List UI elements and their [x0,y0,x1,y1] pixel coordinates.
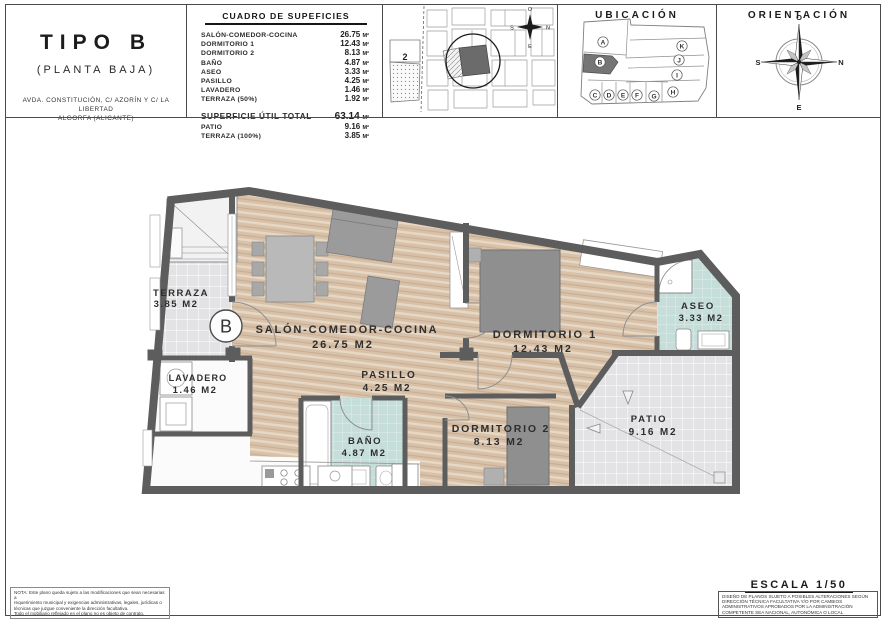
room-label: DORMITORIO 1 [493,329,597,341]
toilet [676,329,691,350]
room-label: LAVADERO [169,373,228,383]
unit-letter: G [651,93,656,100]
room-area: 3.33 M2 [679,313,724,324]
cooktop-control [265,469,274,478]
unit-letter: H [671,89,676,96]
site-map-green-area [390,62,420,102]
site-map-highlighted-parcel [459,45,490,76]
dining-table [266,236,314,302]
disclaimer-note: DISEÑO DE PLANOS SUJETO A POSIBLES ALTER… [718,591,878,618]
unit-letter: E [621,92,626,99]
patio-drain [714,472,725,483]
floor-plan: B TERRAZA 3.85 M2 SALÓN-COMEDOR-COCINA 2… [143,191,736,490]
room-label: PASILLO [361,370,416,381]
oven [318,466,352,487]
compass-letter: O [528,7,533,13]
unit-letter: C [593,92,598,99]
unit-letter: F [635,92,639,99]
compass-letter: N [838,58,843,67]
room-area: 26.75 M2 [312,339,374,351]
ubicacion-key-plan: A B C D E F G H I J K [581,19,709,104]
room-area: 4.87 M2 [342,448,387,459]
room-label: BAÑO [348,436,382,447]
compass-letter: E [528,44,532,50]
room-label: PATIO [631,414,668,425]
compass-letter: E [796,103,801,112]
note-line: ADMINISTRATIVOS APROBADOS POR LA ADMINIS… [722,604,874,609]
room-area: 4.25 M2 [363,383,412,394]
unit-letter: J [677,57,681,64]
unit-letter: A [601,39,606,46]
room-area: 8.13 M2 [474,436,525,448]
room-area: 9.16 M2 [629,427,678,438]
note-line: COMPETENTE SEA NACIONAL, AUTONÓMICA O LO… [722,610,874,615]
site-map: 2 O N S E [390,6,555,112]
compass-arm-south [796,62,803,100]
compass-letter: O [796,13,802,22]
room-area: 12.43 M2 [513,343,573,355]
room-area: 1.46 M2 [173,385,218,396]
armchair [360,276,399,328]
note-line: requerimiento municipal y exigencias adm… [14,600,166,605]
room-label: DORMITORIO 2 [452,423,550,435]
compass-letter: S [755,58,760,67]
unit-letter: B [598,59,603,66]
unit-letter: K [680,43,685,50]
nightstand [484,468,504,485]
note-line: Todo el mobiliario reflejado en el plano… [14,611,166,616]
site-map-parcel-label: 2 [402,52,407,62]
bed-double [480,250,560,332]
site-map-boundary-dashed [421,6,424,112]
room-label: TERRAZA [153,288,209,299]
unit-letter: D [607,92,612,99]
compass-arm-east [799,59,837,66]
room-area: 3.85 M2 [154,299,199,310]
room-label: SALÓN-COMEDOR-COCINA [256,323,439,336]
dryer [160,397,192,431]
compass-arm-north [796,24,803,62]
compass-letter: S [510,26,514,32]
room-label: ASEO [681,301,715,312]
nightstand [468,248,481,262]
shower [659,260,692,293]
compass-arm-west [761,59,799,66]
unit-badge-letter: B [220,317,232,337]
unit-letter: I [676,72,678,79]
note-line: NOTA: Este plano queda sujeto a las modi… [14,590,166,600]
orientation-compass: O N S E [755,13,843,112]
compass-letter: N [546,26,550,32]
graphics-layer: 2 O N S E A B C D E F G H I [0,0,886,620]
legal-note: NOTA: Este plano queda sujeto a las modi… [10,587,170,619]
plan-sheet: TIPO B (PLANTA BAJA) AVDA. CONSTITUCIÓN,… [0,0,886,620]
